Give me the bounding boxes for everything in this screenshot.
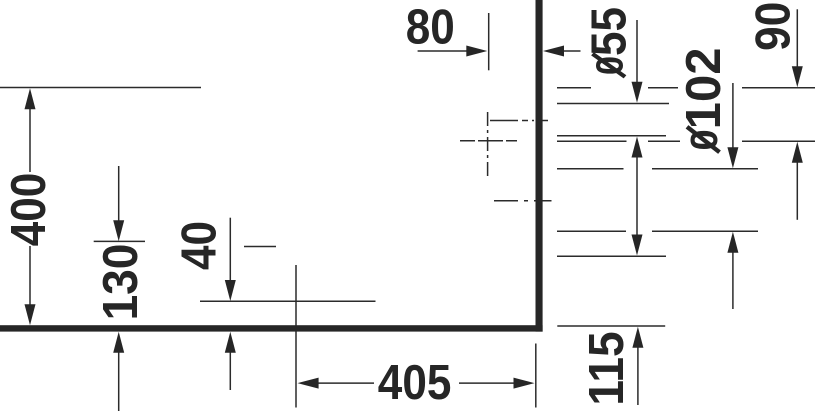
svg-text:405: 405 (378, 355, 452, 410)
svg-text:130: 130 (94, 244, 149, 321)
svg-text:80: 80 (406, 0, 455, 54)
svg-text:115: 115 (580, 331, 635, 405)
svg-text:400: 400 (1, 173, 56, 247)
svg-text:90: 90 (745, 2, 800, 51)
svg-text:0102: 0102 (677, 48, 731, 151)
svg-text:40: 40 (171, 221, 226, 270)
